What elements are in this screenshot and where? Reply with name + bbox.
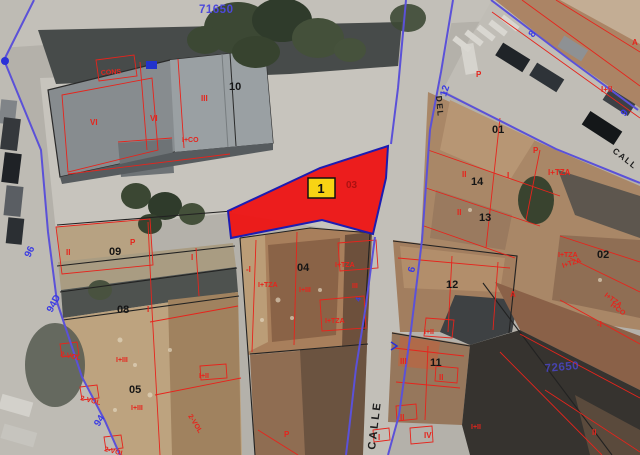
floors-annotation: I+TZA (325, 318, 345, 325)
parcel-number-14: 14 (471, 176, 484, 188)
floors-annotation: II (592, 428, 596, 437)
aerial-basemap (0, 0, 640, 455)
floors-annotation: P (476, 70, 482, 79)
parcel-number-10: 10 (229, 81, 241, 93)
floors-annotation: IV (424, 431, 432, 440)
map-canvas[interactable]: 1 7165072650812969694D944CALLECALLDEL100… (0, 0, 640, 455)
floors-annotation: II (462, 170, 466, 179)
block-number-top: 71650 (199, 4, 233, 16)
floors-annotation: II (439, 373, 443, 382)
floors-annotation: I+III (299, 287, 311, 294)
floors-annotation: I+III (131, 405, 143, 412)
floors-annotation: II (457, 208, 461, 217)
floors-annotation: I+CO (182, 137, 199, 144)
parcel-number-02: 02 (597, 249, 609, 261)
floors-annotation: I+II (199, 373, 209, 380)
parcel-number-08: 08 (117, 304, 129, 316)
floors-annotation: II (400, 413, 404, 422)
floors-annotation: VI (150, 114, 158, 123)
floors-annotation: I+III (116, 357, 128, 364)
floors-annotation: VI (90, 118, 98, 127)
floors-annotation: I (147, 305, 149, 314)
street-name: DEL (434, 95, 446, 117)
floors-annotation: A (632, 38, 638, 47)
floors-annotation: III (352, 283, 358, 290)
parcel-number-12: 12 (446, 279, 458, 291)
floors-annotation: I+II (424, 329, 434, 336)
floors-annotation: II (66, 248, 70, 257)
floors-annotation: I+II (601, 85, 612, 94)
parcel-number-03: 03 (346, 180, 358, 191)
floors-annotation: P (533, 146, 539, 155)
floors-annotation: III (400, 357, 407, 366)
parcel-number-11: 11 (430, 357, 442, 369)
floors-annotation: A (510, 290, 516, 299)
floors-annotation: P (130, 238, 136, 247)
floors-annotation: CONS (101, 69, 122, 77)
floors-annotation: -I (246, 265, 251, 274)
street-marker-icon (1, 57, 9, 65)
parcel-number-04: 04 (297, 262, 310, 274)
pool-icon (146, 61, 157, 69)
parcel-number-13: 13 (479, 212, 491, 224)
floors-annotation: I+II (471, 424, 481, 431)
floors-annotation: -I (597, 320, 602, 329)
floors-annotation: I+TZA (335, 262, 355, 269)
floors-annotation: I (378, 433, 380, 442)
floors-annotation: I+TZA (548, 168, 571, 177)
parcel-badge-label: 1 (317, 181, 324, 196)
floors-annotation: I+TZA (258, 282, 278, 289)
floors-annotation: P (284, 430, 290, 439)
parcel-number-05: 05 (129, 384, 141, 396)
floors-annotation: III (201, 94, 208, 103)
parcel-number-01: 01 (492, 124, 504, 136)
floors-annotation: I (507, 171, 509, 180)
parcel-number-09: 09 (109, 246, 121, 258)
floors-annotation: I (191, 253, 193, 262)
parcel-badge: 1 (308, 178, 335, 198)
